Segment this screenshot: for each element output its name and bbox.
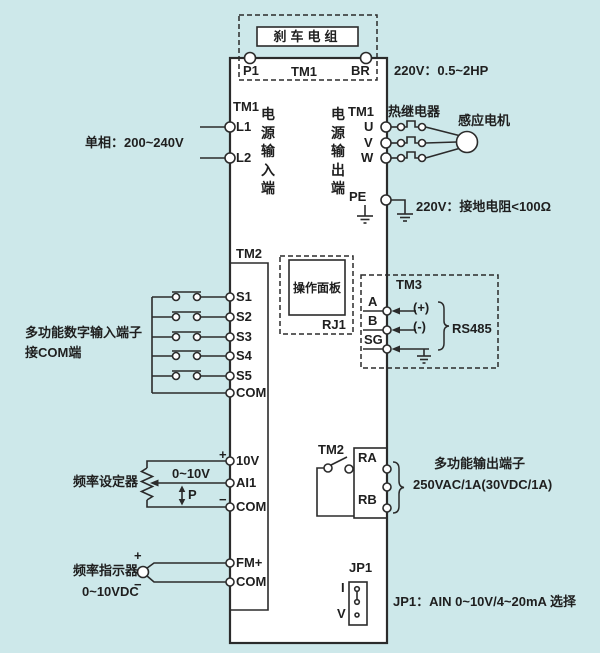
- terminal-label-sg: SG: [364, 333, 383, 347]
- terminal-block-tm3: TM3: [396, 278, 422, 292]
- terminal-label-s3: S3: [236, 330, 252, 344]
- rj1-label: RJ1: [322, 318, 346, 332]
- relay-output-brace: [393, 462, 404, 513]
- rs485-brace: [438, 302, 449, 350]
- digital-input-note-line1: 多功能数字输入端子: [25, 326, 142, 340]
- p-double-arrow: [179, 486, 186, 506]
- potentiometer-symbol: [142, 468, 153, 500]
- analog-range-label: 0~10V: [172, 467, 210, 481]
- brake-resistor-label: 刹车电组: [257, 30, 358, 44]
- terminal-label-l1: L1: [236, 120, 251, 134]
- meter-plus-sign: +: [134, 549, 142, 563]
- switch-row-s3: [152, 332, 234, 341]
- terminal-block-tm2-relay: TM2: [318, 443, 344, 457]
- input-column-label: 电源输入端: [261, 105, 278, 198]
- operation-panel-label: 操作面板: [289, 281, 345, 295]
- analog-plus-sign: +: [219, 448, 227, 462]
- input-phase-note: 单相：200~240V: [85, 136, 184, 150]
- brake-rating-note: 220V：0.5~2HP: [394, 64, 488, 78]
- jp1-label: JP1: [349, 561, 372, 575]
- terminal-label-pe: PE: [349, 190, 366, 204]
- terminal-label-v: V: [364, 136, 373, 150]
- jp1-v-label: V: [337, 607, 346, 621]
- ground-note: 220V：接地电阻<100Ω: [416, 200, 551, 214]
- thermal-relay-label: 热继电器: [388, 105, 440, 119]
- terminal-label-fm: FM+: [236, 556, 262, 570]
- terminal-label-rb: RB: [358, 493, 377, 507]
- relay-output-note-line2: 250VAC/1A(30VDC/1A): [413, 478, 552, 492]
- terminal-label-a: A: [368, 295, 377, 309]
- motor-symbol: [426, 127, 478, 158]
- jp1-i-label: I: [341, 581, 345, 595]
- terminal-block-tm1-output: TM1: [348, 105, 374, 119]
- digital-input-note-line2: 接COM端: [25, 346, 81, 360]
- terminal-label-10v: 10V: [236, 454, 259, 468]
- rs485-plus-label: (+): [413, 301, 429, 315]
- terminal-label-s1: S1: [236, 290, 252, 304]
- ground-symbol-sg: [417, 349, 431, 363]
- rs485-minus-label: (-): [413, 320, 426, 334]
- frequency-indicator-range: 0~10VDC: [82, 585, 139, 599]
- terminal-label-ai1: AI1: [236, 476, 256, 490]
- wiring-diagram: 刹车电组 P1 TM1 BR 220V：0.5~2HP TM1 L1 L2 单相…: [0, 0, 600, 653]
- terminal-label-p1: P1: [243, 64, 259, 78]
- terminal-label-s4: S4: [236, 349, 252, 363]
- terminal-label-b: B: [368, 314, 377, 328]
- ground-symbol-outside: [392, 200, 414, 221]
- switch-row-s4: [152, 351, 234, 360]
- switch-row-s1: [152, 292, 234, 301]
- terminal-label-s2: S2: [236, 310, 252, 324]
- terminal-block-tm1-top: TM1: [291, 65, 317, 79]
- output-column-label: 电源输出端: [331, 105, 348, 198]
- relay-output-note-line1: 多功能输出端子: [434, 457, 525, 471]
- jp1-selection-note: JP1：AIN 0~10V/4~20mA 选择: [393, 595, 576, 609]
- digital-input-wiring: [152, 292, 234, 397]
- p-label: P: [188, 488, 197, 502]
- terminal-block-tm2: TM2: [236, 247, 262, 261]
- terminal-label-u: U: [364, 120, 373, 134]
- thermal-relay-symbol: [391, 121, 426, 162]
- terminal-label-com-meter: COM: [236, 575, 266, 589]
- terminal-label-br: BR: [351, 64, 370, 78]
- switch-row-s2: [152, 312, 234, 321]
- frequency-indicator-label: 频率指示器: [73, 564, 138, 578]
- terminal-label-com-analog: COM: [236, 500, 266, 514]
- terminal-label-ra: RA: [358, 451, 377, 465]
- switch-row-s5: [152, 371, 234, 380]
- terminal-label-l2: L2: [236, 151, 251, 165]
- motor-label: 感应电机: [458, 114, 510, 128]
- terminal-label-s5: S5: [236, 369, 252, 383]
- frequency-setter-label: 频率设定器: [73, 475, 138, 489]
- terminal-block-tm1-input: TM1: [233, 100, 259, 114]
- terminal-label-w: W: [361, 151, 373, 165]
- terminal-label-com-digital: COM: [236, 386, 266, 400]
- frequency-meter-wiring: [138, 559, 235, 586]
- analog-minus-sign: −: [219, 493, 227, 507]
- rs485-bus-label: RS485: [452, 322, 492, 336]
